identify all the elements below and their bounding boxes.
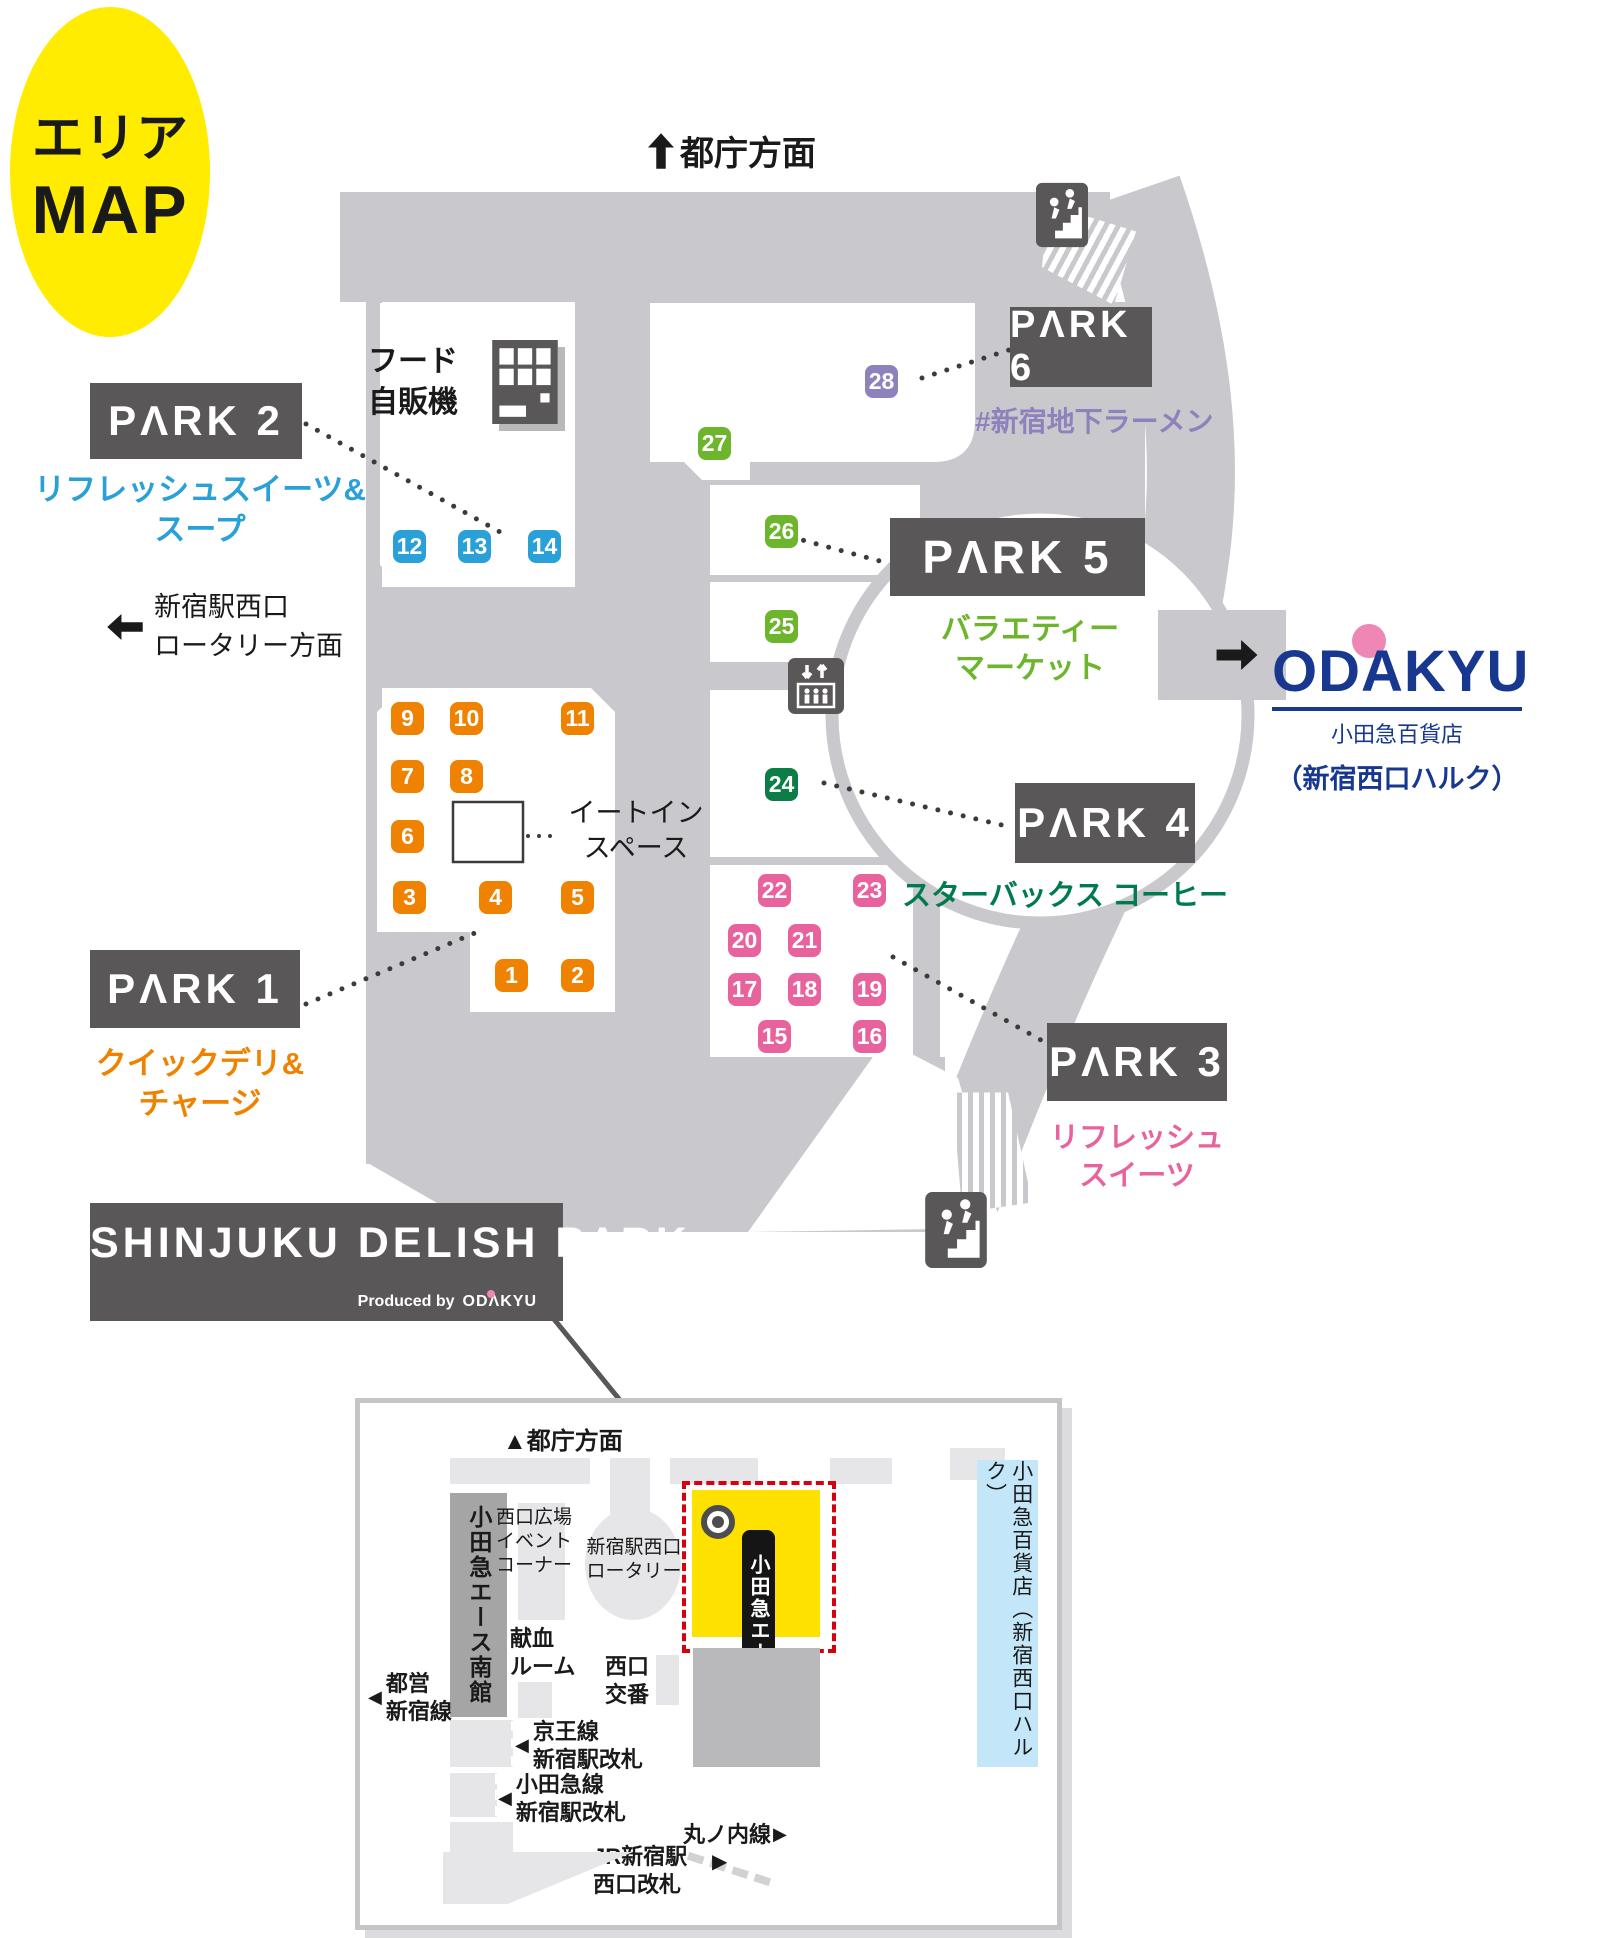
odakyu-logo-text: ODAKYU xyxy=(1272,639,1529,704)
eat-in-label: イートイン スペース xyxy=(556,796,716,866)
park2-subtitle: リフレッシュスイーツ& スープ xyxy=(16,470,384,551)
right-arrow: ▶ xyxy=(773,1824,787,1845)
title-line2: MAP xyxy=(31,171,188,249)
stall-badge-6: 6 xyxy=(391,820,424,853)
inset-marunouchi: 丸ノ内線 ▶ xyxy=(683,1821,787,1849)
inset-direction-tocho: ▲都庁方面 xyxy=(503,1421,623,1456)
stall-badge-5: 5 xyxy=(561,881,594,914)
delish-park-banner: SHINJUKU DELISH PΛRK Produced by ODΛKYU xyxy=(90,1203,563,1321)
direction-rotary: 新宿駅西口 ロータリー方面 xyxy=(106,588,343,666)
stall-badge-27: 27 xyxy=(698,427,731,460)
inset-block xyxy=(656,1655,679,1705)
inset-strip xyxy=(450,1458,590,1484)
left-arrow: ◀ xyxy=(515,1735,529,1756)
banner-brand-dot xyxy=(487,1290,495,1298)
odakyu-logo-block: ODAKYU 小田急百貨店 （新宿西口ハルク） xyxy=(1272,638,1522,796)
park5-label: PΛRK 5 xyxy=(890,518,1145,596)
stall-badge-20: 20 xyxy=(728,924,761,957)
odakyu-store-name: 小田急百貨店 xyxy=(1272,717,1522,749)
vending-label: フード 自販機 xyxy=(368,342,458,423)
vending-machine-icon xyxy=(492,340,558,424)
park4-subtitle: スターバックス コーヒー xyxy=(890,878,1240,916)
stall-badge-1: 1 xyxy=(495,959,528,992)
inset-strip xyxy=(830,1458,892,1484)
stall-badge-21: 21 xyxy=(788,924,821,957)
odakyu-exit-arrow-icon xyxy=(1216,640,1258,675)
left-arrow: ◀ xyxy=(368,1687,382,1708)
inset-up-arrow: ▲ xyxy=(503,1428,527,1455)
stall-badge-2: 2 xyxy=(561,959,594,992)
stall-badge-18: 18 xyxy=(788,973,821,1006)
title-line1: エリア xyxy=(32,96,188,171)
park6-subtitle: #新宿地下ラーメン xyxy=(975,404,1195,440)
left-arrow: ◀ xyxy=(498,1788,512,1809)
banner-brand: ODΛKYU xyxy=(463,1293,537,1310)
park1-subtitle: クイックデリ& チャージ xyxy=(60,1044,340,1125)
stall-badge-7: 7 xyxy=(391,760,424,793)
stall-badge-17: 17 xyxy=(728,973,761,1006)
inset-block xyxy=(518,1682,552,1718)
inset-jr: JR新宿駅 西口改札 xyxy=(593,1843,687,1898)
inset-block xyxy=(450,1773,497,1817)
park6-label: PΛRK 6 xyxy=(1010,307,1152,387)
stall-badge-4: 4 xyxy=(479,881,512,914)
stall-badge-11: 11 xyxy=(561,702,594,735)
inset-marunouchi-dash xyxy=(687,1852,771,1886)
stairs-icon-top xyxy=(1036,178,1088,252)
stairs-icon-bottom xyxy=(922,1192,990,1268)
station-inset-map: ▲都庁方面 小田急エース南館 西口広場 イベント コーナー 新宿駅西口 ロータリ… xyxy=(355,1398,1062,1930)
stall-badge-23: 23 xyxy=(853,874,886,907)
inset-blood-room: 献血 ルーム xyxy=(510,1625,575,1680)
stall-badge-8: 8 xyxy=(450,760,483,793)
inset-marunouchi-arrow: ▶ xyxy=(712,1849,727,1874)
park4-label: PΛRK 4 xyxy=(1015,783,1195,863)
park5-subtitle: バラエティー マーケット xyxy=(905,610,1155,688)
eat-in-box xyxy=(453,802,523,862)
inset-keio: ◀ 京王線 新宿駅改札 xyxy=(515,1718,643,1773)
inset-odakyu-line: ◀ 小田急線 新宿駅改札 xyxy=(498,1771,626,1826)
odakyu-underline xyxy=(1272,707,1522,711)
inset-location-pin xyxy=(701,1505,735,1539)
stall-badge-16: 16 xyxy=(853,1020,886,1053)
direction-tocho: 都庁方面 xyxy=(648,126,816,175)
inset-block xyxy=(450,1720,513,1767)
odakyu-building-name: （新宿西口ハルク） xyxy=(1272,757,1522,796)
up-arrow-icon xyxy=(648,132,674,170)
inset-dept-store: 小田急百貨店（新宿西口ハルク） xyxy=(977,1460,1038,1767)
direction-rotary-label: 新宿駅西口 ロータリー方面 xyxy=(154,588,343,666)
stall-badge-13: 13 xyxy=(458,530,491,563)
direction-tocho-label: 都庁方面 xyxy=(680,126,816,175)
stall-badge-10: 10 xyxy=(450,702,483,735)
room-26 xyxy=(710,485,920,575)
stall-badge-14: 14 xyxy=(528,530,561,563)
inset-police: 西口 交番 xyxy=(605,1653,649,1708)
stall-badge-19: 19 xyxy=(853,973,886,1006)
left-arrow-icon xyxy=(106,614,144,640)
stall-badge-26: 26 xyxy=(765,515,798,548)
stall-badge-3: 3 xyxy=(393,881,426,914)
inset-toei: ◀ 都営 新宿線 xyxy=(368,1670,452,1725)
stall-badge-22: 22 xyxy=(758,874,791,907)
stall-badge-9: 9 xyxy=(391,702,424,735)
banner-produced-by: Produced by xyxy=(358,1293,455,1311)
elevator-icon xyxy=(788,658,844,714)
banner-title: SHINJUKU DELISH PΛRK xyxy=(90,1203,563,1268)
park3-label: PΛRK 3 xyxy=(1047,1023,1227,1101)
park2-label: PΛRK 2 xyxy=(90,383,302,459)
inset-rotary-label: 新宿駅西口 ロータリー xyxy=(579,1536,689,1584)
stall-badge-25: 25 xyxy=(765,610,798,643)
park3-subtitle: リフレッシュ スイーツ xyxy=(1037,1120,1237,1195)
area-map-title: エリア MAP xyxy=(10,7,210,337)
stall-badge-12: 12 xyxy=(393,530,426,563)
stall-badge-24: 24 xyxy=(765,768,798,801)
stall-badge-15: 15 xyxy=(758,1020,791,1053)
inset-block-dark xyxy=(693,1648,820,1767)
park1-label: PΛRK 1 xyxy=(90,950,300,1028)
area-map-page: エリア MAP 都庁方面 新宿駅西口 ロータリー方面 フード 自販機 xyxy=(0,0,1600,1938)
stall-badge-28: 28 xyxy=(865,365,898,398)
